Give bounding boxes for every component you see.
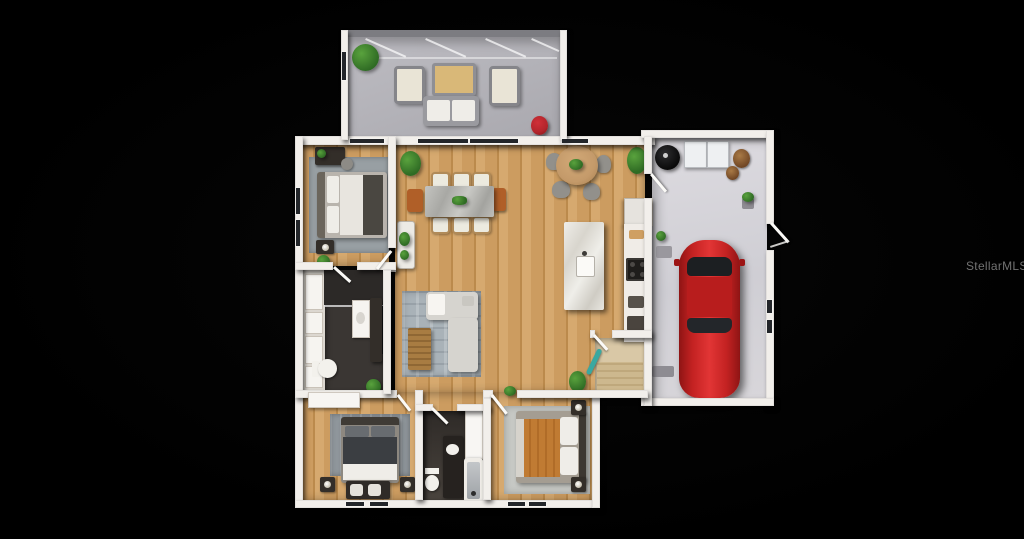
master-bed-throw [363, 175, 383, 235]
laundry-entry-rug [597, 362, 643, 391]
dining-accent-chair [407, 189, 423, 212]
island-sink [576, 256, 595, 277]
dining-accent-chair [492, 188, 506, 211]
bedroom3-headboard [579, 411, 586, 483]
dining-chair [472, 216, 491, 234]
master-top-window [350, 139, 384, 143]
bedroom2-window [346, 502, 364, 506]
wall-wing-right [592, 390, 600, 508]
wall-bathroom2-top-a [415, 404, 433, 411]
tv-console [370, 298, 382, 362]
dining-centerpiece [452, 196, 467, 205]
garage-grill [655, 145, 680, 170]
patio-sliding-door [470, 139, 518, 143]
patio-red-side-table [531, 116, 548, 135]
hallway-plant [504, 386, 516, 396]
bedroom2-headboard [341, 417, 399, 425]
bedroom3-nightstand-lamp [571, 477, 586, 492]
wall-bathroom2-right [483, 398, 491, 500]
wall-bath1-right [383, 270, 391, 394]
master-bed-sheet [340, 175, 364, 235]
bedroom2-nightstand-lamp [400, 477, 415, 492]
wall-patio-left [341, 30, 348, 140]
car-rear-window [687, 318, 732, 333]
car-mirror [739, 259, 745, 266]
wall-master-right [388, 136, 396, 248]
kitchen-appliance [628, 296, 644, 308]
garage-potted-plant [742, 192, 754, 202]
wall-entry-top-b [612, 330, 652, 338]
patio-armchair-left [394, 66, 425, 104]
bedroom3-pillow [560, 447, 578, 475]
nook-chair [583, 183, 600, 200]
nook-chair [552, 181, 570, 198]
bedroom3-window [508, 502, 525, 506]
plant-stand-greens [400, 250, 409, 260]
patio-sofa-cushion [427, 100, 450, 121]
bedroom2-pillow [345, 426, 369, 437]
sofa-throw-blanket [428, 294, 445, 315]
dining-chair [452, 216, 471, 234]
bathroom2-toilet-bowl [425, 475, 439, 491]
patio-sliding-door [418, 139, 468, 143]
wall-garage-left-upper [644, 136, 652, 174]
garage-side-door-swing [770, 240, 788, 247]
garage-door-mat [652, 366, 674, 377]
stove-burner [630, 272, 635, 277]
master-left-window [296, 188, 300, 214]
wall-garage-top [641, 130, 774, 138]
bedroom2-basket [368, 484, 381, 496]
bedroom3-blanket [523, 419, 560, 477]
dining-chair [431, 216, 450, 234]
patio-plant [352, 44, 379, 71]
living-coffee-table [408, 328, 431, 370]
bedroom2-nightstand-lamp [320, 477, 335, 492]
patio-roof-beam [353, 57, 557, 59]
plant-stand-greens [399, 232, 410, 246]
closet-shelf [305, 336, 323, 364]
bedroom2-window [370, 502, 388, 506]
garage-door-mat [656, 246, 672, 258]
garage-right-window [767, 300, 772, 313]
kitchen-cutting-board [629, 230, 644, 239]
bathroom2-sink [446, 444, 459, 455]
patio-roof-edge [341, 30, 567, 37]
garage-basket [726, 166, 739, 180]
dining-plant [400, 151, 421, 176]
garage-basket [733, 149, 750, 168]
car-roof [687, 277, 732, 317]
wall-bedroom3-top-b [517, 390, 648, 398]
bedroom3-pillow [560, 417, 578, 445]
stove-burner [630, 262, 635, 267]
closet-shelf [305, 312, 323, 334]
bathroom2-tub-drain [471, 491, 476, 496]
bedroom2-duvet [343, 437, 397, 465]
nook-chair [596, 155, 611, 173]
patio-sofa-cushion [452, 100, 475, 121]
master-toilet-bowl [318, 359, 337, 378]
nook-window [562, 139, 588, 143]
master-nightstand [316, 240, 334, 254]
floorplan-render: StellarMLS [0, 0, 1024, 539]
patio-armchair-right [489, 66, 520, 106]
wall-wing-bottom [295, 500, 600, 508]
master-desk-chair [341, 158, 353, 170]
garage-small-plant [656, 231, 666, 241]
bathroom2-toilet-tank [425, 468, 439, 474]
wall-patio-right [560, 30, 567, 140]
bedroom3-nightstand-lamp [571, 400, 586, 415]
master-desk-plant [317, 149, 326, 158]
closet-shelf [305, 274, 323, 310]
garage-cabinet [707, 141, 729, 168]
master-bed-pillows [327, 176, 339, 203]
entry-plant [569, 371, 586, 392]
sofa-pillow [462, 296, 474, 306]
stellar-mls-watermark: StellarMLS [966, 259, 1024, 273]
garage-cabinet [684, 141, 707, 168]
garage-grill-knob [663, 153, 668, 158]
bedroom2-blanket [343, 464, 397, 480]
nook-centerpiece [569, 159, 583, 170]
patio-left-window [342, 52, 346, 80]
sectional-sofa-right [448, 318, 478, 372]
bedroom3-bed-end [516, 419, 524, 477]
bedroom2-basket [350, 484, 363, 496]
master-vanity-sink [356, 312, 365, 324]
car-mirror [674, 259, 680, 266]
bedroom2-credenza [308, 392, 360, 408]
wall-garage-bottom [641, 398, 774, 406]
bedroom3-window [529, 502, 546, 506]
wall-garage-right-upper [766, 130, 774, 224]
bedroom2-pillow [371, 426, 395, 437]
island-faucet [582, 251, 587, 256]
master-left-window [296, 220, 300, 246]
garage-right-window [767, 320, 772, 333]
bathroom2-door-panel [465, 407, 483, 459]
wall-master-bottom-a [295, 262, 333, 270]
patio-coffee-table [432, 63, 476, 96]
master-bed-headboard [317, 172, 325, 238]
wall-garage-left-lower [644, 198, 652, 406]
master-bed-pillows [327, 206, 339, 233]
car-windshield [687, 257, 732, 276]
